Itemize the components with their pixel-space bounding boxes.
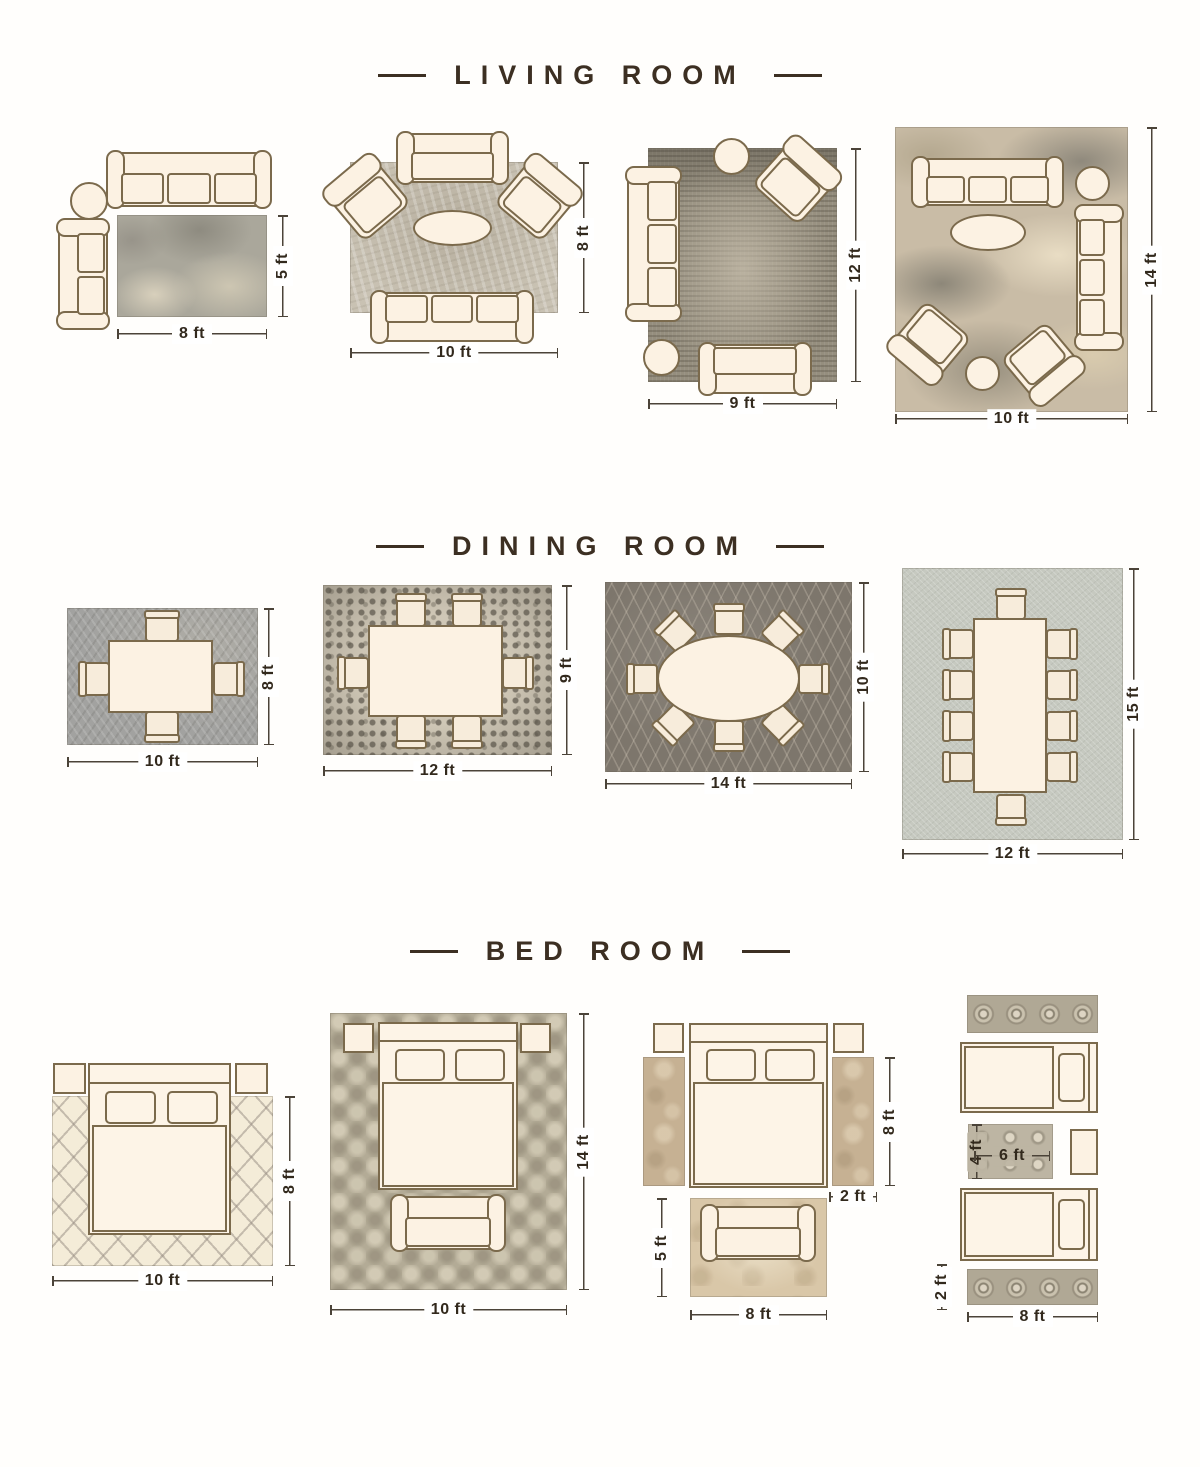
blanket	[693, 1082, 824, 1184]
dimension-width: 14 ft	[605, 778, 852, 790]
dining-chair	[714, 720, 744, 748]
headboard	[88, 1082, 231, 1084]
pillow	[455, 1049, 505, 1082]
twin-bed	[960, 1042, 1098, 1113]
round-side-table	[965, 356, 1000, 391]
dining-chair	[341, 657, 369, 689]
dimension-height: 10 ft	[858, 582, 870, 772]
bed	[378, 1022, 518, 1190]
dimension-height: 12 ft	[850, 148, 862, 382]
sofa-3seat	[1076, 206, 1122, 349]
header-dash-right	[742, 950, 790, 953]
round-side-table	[643, 339, 680, 376]
headboard	[1088, 1188, 1090, 1261]
dining-table	[973, 618, 1047, 793]
bed	[689, 1023, 828, 1188]
dimension-width: 10 ft	[895, 413, 1128, 425]
nightstand	[653, 1023, 684, 1053]
bed	[88, 1063, 231, 1235]
dimension-accent-rug-width: 8 ft	[690, 1309, 827, 1321]
headboard	[1088, 1042, 1090, 1113]
header-dash-right	[774, 74, 822, 77]
pillow	[1058, 1199, 1085, 1250]
dimension-height: 14 ft	[1146, 127, 1158, 412]
dimension-height: 5 ft	[277, 215, 289, 317]
runner-rug	[967, 1269, 1098, 1305]
seat-cushions	[411, 152, 494, 180]
dimension-height: 15 ft	[1128, 568, 1140, 840]
dimension-accent-rug-width: 6 ft	[974, 1150, 1050, 1162]
loveseat	[58, 220, 108, 328]
dimension-height: 9 ft	[561, 585, 573, 755]
dimension-width: 10 ft	[52, 1275, 273, 1287]
pillow	[105, 1091, 156, 1124]
dining-chair	[452, 715, 482, 745]
seat-cushions	[926, 176, 1049, 203]
header-dash-right	[776, 545, 824, 548]
round-side-table	[1075, 166, 1110, 201]
nightstand	[520, 1023, 551, 1053]
dimension-width: 10 ft	[67, 756, 258, 768]
section-title: LIVING ROOM	[454, 60, 746, 91]
dining-chair	[396, 715, 426, 745]
dimension-width: 8 ft	[967, 1311, 1098, 1323]
dimension-height: 8 ft	[284, 1096, 296, 1266]
runner-rug	[967, 995, 1098, 1033]
dimension-width: 10 ft	[350, 347, 558, 359]
dining-chair	[1046, 752, 1074, 782]
dimension-height: 14 ft	[578, 1013, 590, 1290]
header-dash-left	[378, 74, 426, 77]
round-side-table	[70, 182, 108, 220]
seat-cushions	[713, 347, 797, 375]
dining-chair	[946, 629, 974, 659]
dining-chair	[1046, 711, 1074, 741]
section-title: BED ROOM	[486, 936, 715, 967]
sofa-3seat	[913, 158, 1062, 206]
blanket	[92, 1125, 226, 1232]
round-side-table	[713, 138, 750, 175]
dimension-height: 8 ft	[578, 162, 590, 313]
dining-chair	[946, 752, 974, 782]
section-header-dining-room: DINING ROOM	[0, 531, 1200, 562]
blanket	[382, 1082, 514, 1186]
dining-chair	[1046, 629, 1074, 659]
dining-chair	[714, 607, 744, 635]
dimension-runner-width: 2 ft	[829, 1191, 877, 1203]
dining-chair	[502, 657, 530, 689]
seat-cushions	[715, 1227, 801, 1257]
dimension-runner-height: 8 ft	[884, 1057, 896, 1186]
rug	[117, 215, 267, 317]
rug-size-guide: LIVING ROOM 5 ft 8 ft	[0, 0, 1200, 1467]
pillow	[706, 1049, 756, 1081]
runner-rug	[832, 1057, 874, 1186]
section-header-living-room: LIVING ROOM	[0, 60, 1200, 91]
dining-chair	[145, 614, 179, 642]
twin-bed	[960, 1188, 1098, 1261]
dining-table	[368, 625, 503, 717]
section-header-bed-room: BED ROOM	[0, 936, 1200, 967]
header-dash-left	[376, 545, 424, 548]
sofa-3seat	[627, 168, 680, 320]
seat-cushions	[647, 181, 677, 307]
headboard	[378, 1040, 518, 1042]
dimension-width: 8 ft	[117, 328, 267, 340]
dimension-width: 12 ft	[323, 765, 552, 777]
dining-chair	[213, 662, 241, 696]
blanket	[964, 1192, 1054, 1258]
nightstand	[833, 1023, 864, 1053]
dining-chair	[145, 711, 179, 739]
section-title: DINING ROOM	[452, 531, 748, 562]
nightstand	[53, 1063, 86, 1094]
loveseat	[700, 344, 810, 394]
seat-cushions	[1079, 219, 1105, 336]
dimension-runner-height: 2 ft	[936, 1264, 948, 1310]
dining-chair	[996, 592, 1026, 620]
oval-dining-table	[657, 635, 800, 722]
pillow	[167, 1091, 218, 1124]
dining-chair	[630, 664, 658, 694]
headboard	[689, 1041, 828, 1043]
bench	[702, 1206, 814, 1260]
seat-cushions	[77, 233, 105, 315]
dimension-accent-rug-height: 5 ft	[656, 1198, 668, 1297]
nightstand	[343, 1023, 374, 1053]
seat-cushions	[121, 173, 257, 204]
sofa-3seat	[108, 152, 270, 207]
dining-chair	[996, 794, 1026, 822]
blanket	[964, 1046, 1054, 1110]
loveseat	[398, 133, 507, 183]
pillow	[765, 1049, 815, 1081]
nightstand	[235, 1063, 268, 1094]
dining-chair	[396, 597, 426, 627]
dimension-height: 8 ft	[263, 608, 275, 745]
header-dash-left	[410, 950, 458, 953]
dimension-width: 10 ft	[330, 1304, 567, 1316]
pillow	[1058, 1053, 1085, 1103]
pillow	[395, 1049, 445, 1082]
sofa-3seat	[372, 292, 532, 342]
dimension-width: 9 ft	[648, 398, 837, 410]
oval-coffee-table	[413, 210, 492, 246]
dining-chair	[452, 597, 482, 627]
runner-rug	[643, 1057, 685, 1186]
dining-chair	[82, 662, 110, 696]
seat-cushions	[405, 1217, 491, 1247]
dining-chair	[798, 664, 826, 694]
nightstand	[1070, 1129, 1098, 1175]
seat-cushions	[385, 295, 519, 323]
bench	[392, 1196, 504, 1250]
dimension-width: 12 ft	[902, 848, 1123, 860]
oval-coffee-table	[950, 214, 1026, 251]
dining-chair	[946, 711, 974, 741]
dining-chair	[946, 670, 974, 700]
dining-table	[108, 640, 213, 713]
dining-chair	[1046, 670, 1074, 700]
